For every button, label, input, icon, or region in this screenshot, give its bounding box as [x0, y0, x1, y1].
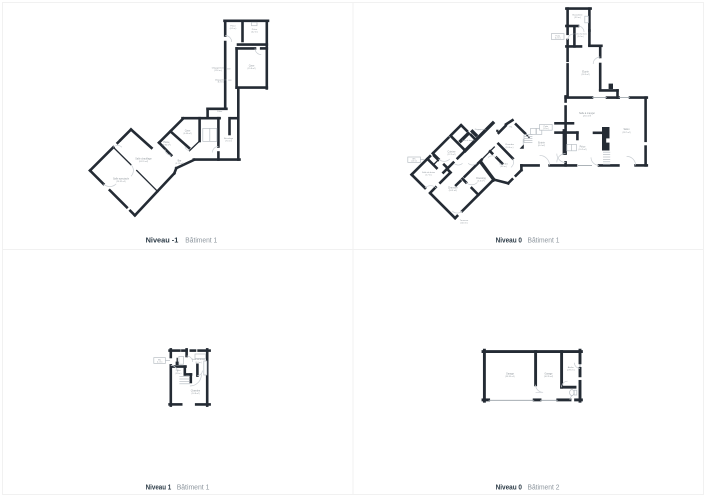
svg-text:Bar: Bar	[178, 159, 182, 162]
svg-text:(3.4 m²): (3.4 m²)	[175, 372, 181, 375]
svg-text:Niveau -1: Niveau -1	[146, 236, 179, 245]
svg-text:(9.80 m²): (9.80 m²)	[162, 143, 170, 146]
svg-text:(24.15 m²): (24.15 m²)	[139, 160, 149, 163]
svg-text:(8.4 m²): (8.4 m²)	[538, 144, 545, 147]
svg-text:(28.32 m²): (28.32 m²)	[116, 180, 126, 183]
svg-text:Salle d'armes: Salle d'armes	[574, 33, 587, 36]
svg-text:(2.95 m²): (2.95 m²)	[567, 368, 575, 371]
svg-text:(5.7 m²): (5.7 m²)	[425, 174, 432, 177]
svg-text:(12.6 m²): (12.6 m²)	[214, 69, 222, 72]
svg-text:Pal.: Pal.	[509, 127, 513, 129]
svg-text:Atelier: Atelier	[568, 366, 574, 369]
svg-text:(14.8 m²): (14.8 m²)	[191, 392, 199, 395]
svg-text:(28.7 m²): (28.7 m²)	[622, 131, 630, 134]
svg-text:Bâtiment 2: Bâtiment 2	[528, 483, 560, 492]
svg-text:Dressing: Dressing	[476, 177, 486, 180]
svg-text:(6.40 m²): (6.40 m²)	[183, 132, 191, 135]
svg-text:Bâtiment 1: Bâtiment 1	[185, 236, 217, 245]
svg-text:Bâtiment 1: Bâtiment 1	[528, 236, 560, 245]
svg-text:Bricolage: Bricolage	[224, 137, 234, 140]
svg-text:(9.6 m²): (9.6 m²)	[500, 165, 507, 168]
svg-text:(38.95 m²): (38.95 m²)	[505, 375, 515, 378]
svg-text:(3.9 m²): (3.9 m²)	[574, 16, 581, 19]
svg-text:(25.5 m²): (25.5 m²)	[583, 115, 591, 118]
svg-text:(6.2 m²): (6.2 m²)	[251, 31, 258, 34]
svg-text:Salle chauffage: Salle chauffage	[135, 158, 152, 161]
svg-text:(5.3 m²): (5.3 m²)	[195, 361, 202, 364]
svg-text:Bâtiment 1: Bâtiment 1	[177, 483, 210, 492]
svg-text:Dégagement: Dégagement	[475, 128, 487, 131]
svg-text:Salle de douche: Salle de douche	[462, 140, 475, 142]
svg-text:(16.9 m²): (16.9 m²)	[581, 73, 589, 76]
svg-text:(4.1 m²): (4.1 m²)	[230, 27, 237, 30]
svg-text:Salle spectacle: Salle spectacle	[113, 178, 130, 181]
svg-text:Garage: Garage	[506, 372, 515, 375]
svg-text:Garage: Garage	[545, 372, 554, 375]
svg-text:Entrée: Entrée	[538, 142, 545, 145]
svg-text:(8.15 m²): (8.15 m²)	[175, 162, 183, 165]
svg-text:Cave: Cave	[185, 130, 191, 133]
svg-text:(15.8 m²): (15.8 m²)	[247, 67, 255, 70]
svg-text:(8.4 m²): (8.4 m²)	[218, 81, 224, 84]
svg-text:Salle à manger: Salle à manger	[579, 112, 595, 115]
svg-text:Écurie: Écurie	[582, 71, 589, 74]
svg-text:(5.4 m²): (5.4 m²)	[577, 35, 584, 38]
svg-text:Palier: Palier	[217, 111, 222, 113]
svg-text:(16.35 m²): (16.35 m²)	[544, 375, 554, 378]
svg-text:(16.8 m²): (16.8 m²)	[449, 189, 457, 192]
svg-text:(6.3 m²): (6.3 m²)	[478, 180, 485, 183]
svg-text:Cave: Cave	[249, 65, 255, 68]
svg-text:Niveau 0: Niveau 0	[496, 236, 522, 245]
svg-text:Niveau 0: Niveau 0	[496, 483, 522, 492]
svg-text:Buanderie: Buanderie	[573, 14, 584, 17]
svg-text:WC: WC	[412, 159, 416, 161]
svg-text:Salon: Salon	[623, 128, 630, 131]
svg-text:Cuisine: Cuisine	[448, 150, 457, 153]
svg-text:(14.6 m²): (14.6 m²)	[460, 221, 468, 224]
svg-text:Chambre: Chambre	[191, 389, 201, 392]
svg-text:Chambre: Chambre	[505, 143, 515, 146]
svg-text:Chambre: Chambre	[448, 187, 459, 190]
svg-text:Chambre: Chambre	[499, 163, 509, 166]
svg-text:(7.6 m²): (7.6 m²)	[225, 139, 232, 142]
svg-text:(10.2 m²): (10.2 m²)	[578, 148, 586, 151]
svg-text:Niveau 1: Niveau 1	[146, 483, 172, 492]
svg-text:(10.4 m²): (10.4 m²)	[506, 146, 514, 149]
svg-text:Pièce: Pièce	[164, 141, 171, 144]
svg-text:(12.2 m²): (12.2 m²)	[447, 153, 455, 156]
